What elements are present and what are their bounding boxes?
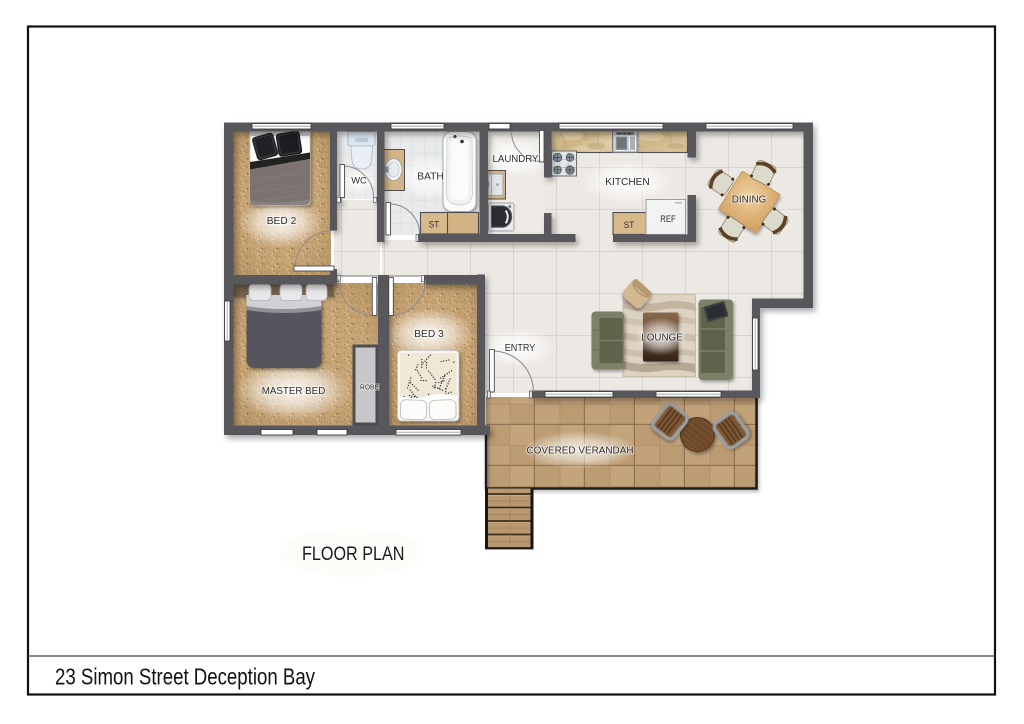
svg-text:BED 3: BED 3 [414, 328, 444, 340]
svg-text:BED 2: BED 2 [267, 215, 297, 227]
svg-text:KITCHEN: KITCHEN [605, 176, 650, 188]
svg-text:WC: WC [351, 176, 367, 187]
svg-text:ST: ST [624, 220, 635, 230]
svg-text:ENTRY: ENTRY [505, 342, 536, 354]
svg-text:ROBE: ROBE [360, 383, 379, 392]
svg-text:FLOOR PLAN: FLOOR PLAN [302, 544, 405, 565]
svg-text:23 Simon Street Deception Bay: 23 Simon Street Deception Bay [55, 664, 315, 690]
svg-text:LAUNDRY: LAUNDRY [493, 153, 539, 165]
svg-text:BATH: BATH [417, 171, 444, 183]
svg-text:LOUNGE: LOUNGE [641, 332, 683, 344]
svg-text:REF: REF [660, 214, 676, 225]
svg-text:ST: ST [429, 220, 440, 230]
svg-text:MASTER BED: MASTER BED [262, 385, 326, 397]
svg-text:DINING: DINING [732, 194, 767, 206]
svg-text:COVERED VERANDAH: COVERED VERANDAH [527, 446, 634, 457]
